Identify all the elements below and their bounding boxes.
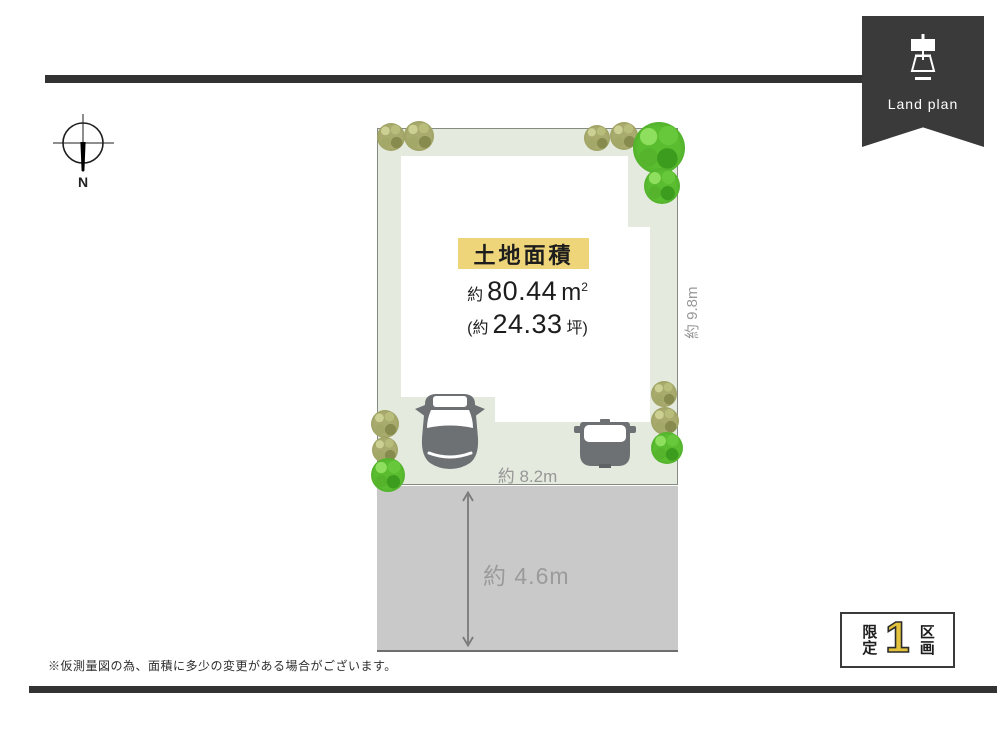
land-area-values: 約 80.44 m2 (約 24.33 坪): [377, 273, 678, 343]
tsubo-suffix: 坪): [567, 315, 588, 343]
compass-icon: N: [52, 112, 116, 198]
land-area-title: 土地面積: [458, 238, 589, 269]
tree-icon: [633, 122, 685, 174]
land-plan-page: Land plan N: [0, 0, 1000, 750]
survey-disclaimer: ※仮測量図の為、面積に多少の変更がある場合がございます。: [48, 657, 397, 674]
dimension-frontage: 約 8.2m: [377, 462, 678, 487]
road-width-arrow: [461, 491, 475, 647]
tree-icon: [644, 168, 680, 204]
compass-rose: [52, 112, 116, 178]
badge-count: 1: [885, 616, 909, 660]
area-sqm-line: 約 80.44 m2: [377, 273, 678, 310]
bush-icon: [377, 123, 405, 151]
bush-icon: [651, 381, 677, 407]
limited-lot-badge: 限定 1 区画: [840, 612, 955, 668]
area-sqm-unit: m2: [561, 273, 588, 307]
bottom-rule: [29, 686, 997, 693]
bush-icon: [584, 125, 610, 151]
bush-icon: [371, 410, 399, 438]
area-tsubo-value: 24.33: [492, 310, 562, 338]
dimension-road-width: 約 4.6m: [483, 557, 570, 591]
ribbon-label: Land plan: [888, 96, 959, 112]
badge-left-label: 限定: [861, 624, 876, 656]
bush-icon: [651, 407, 679, 435]
approx-prefix: 約: [467, 282, 483, 310]
tree-icon: [651, 432, 683, 464]
top-rule: [45, 75, 862, 83]
surveyor-lamp-icon: [903, 34, 943, 84]
area-tsubo-line: (約 24.33 坪): [377, 310, 678, 343]
land-plan-ribbon: Land plan: [862, 16, 984, 147]
bush-icon: [404, 121, 434, 151]
badge-right-label: 区画: [919, 624, 934, 656]
car-large-icon: [413, 390, 487, 472]
dimension-right-side: 約 9.8m: [681, 286, 702, 339]
compass-north-label: N: [52, 174, 114, 190]
tsubo-prefix: (約: [467, 315, 488, 343]
area-sqm-value: 80.44: [487, 277, 557, 305]
